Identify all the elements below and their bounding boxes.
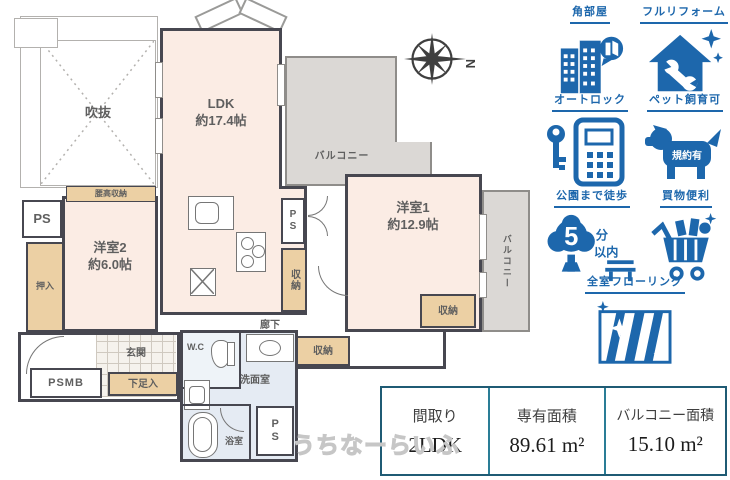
bath-room: 浴室 (183, 404, 251, 460)
park-icon: 5 分 以内 (544, 213, 640, 283)
balcony-right: バルコニー (482, 190, 530, 332)
window (479, 214, 487, 260)
refrigerator-space (190, 268, 216, 296)
auto-lock-icon (544, 117, 636, 189)
bathtub (188, 412, 218, 458)
flooring-icon (592, 299, 678, 371)
closet-oshiire: 押入 (26, 242, 64, 332)
watermark: うちなーらいふ (292, 426, 460, 460)
bath-door-arc (220, 408, 244, 432)
feature-label-park-walk: 公園まで徒歩 (554, 190, 630, 208)
kitchen-counter (188, 196, 234, 230)
void-inner: 吹抜 (40, 40, 156, 186)
feature-label-auto-lock: オートロック (552, 94, 628, 112)
feature-auto-lock: オートロック (542, 94, 638, 189)
bathtub-inner (193, 417, 212, 452)
wc-label: W.C (187, 342, 204, 354)
ps-bath: PS (256, 406, 294, 456)
genkan-label: 玄関 (96, 347, 176, 360)
park-within-label: 以内 (594, 245, 619, 260)
kitchen-stove (236, 232, 266, 272)
closet-koshidaka: 腰高収納 (66, 186, 156, 202)
feature-label-full-reform: フルリフォーム (640, 6, 728, 24)
window (155, 62, 163, 98)
area-header: 専有面積 (517, 405, 577, 426)
window (155, 118, 163, 154)
park-minute-unit: 分 (596, 228, 609, 243)
feature-label-flooring: 全室フローリング (585, 276, 685, 294)
room1-label: 洋室1 約12.9帖 (358, 200, 468, 234)
feature-full-reform: フルリフォーム (638, 6, 730, 101)
feature-label-corner-room: 角部屋 (570, 6, 610, 24)
closet-room1: 収納 (420, 294, 476, 328)
double-door-lower (308, 216, 328, 236)
bath-label: 浴室 (219, 436, 249, 448)
psmb-box: PSMB (30, 368, 102, 398)
closet-getabako: 下足入 (108, 372, 178, 396)
feature-park-walk: 公園まで徒歩 5 分 以内 (542, 190, 642, 283)
closet-kitchen: 収納 (281, 248, 307, 312)
balcony-top-label: バルコニー (292, 150, 392, 163)
feature-flooring: 全室フローリング (540, 276, 730, 371)
area-value: 89.61 m² (509, 433, 584, 458)
full-reform-icon (644, 29, 724, 101)
balcony-header: バルコニー面積 (616, 405, 714, 425)
shopping-cart-icon (648, 213, 724, 283)
senmen-label: 洗面室 (225, 374, 285, 387)
south-wall-b (443, 332, 446, 369)
feature-pet-ok: ペット飼育可 規約有 (640, 94, 730, 189)
park-minutes-value: 5 (564, 223, 578, 251)
washer-drum (189, 386, 205, 404)
vanity-sink (246, 334, 294, 362)
compass-icon: N (396, 26, 482, 92)
closet-hall: 収納 (296, 336, 350, 366)
room2-label: 洋室2 約6.0帖 (64, 240, 156, 274)
window (277, 64, 285, 106)
feature-label-pet-ok: ペット飼育可 (647, 94, 723, 112)
summary-col-area: 専有面積 89.61 m² (488, 388, 603, 474)
corner-room-icon (548, 29, 632, 101)
double-door-upper (308, 196, 328, 216)
void-corner-box (14, 18, 58, 48)
feature-corner-room: 角部屋 (544, 6, 636, 101)
ps-left: PS (22, 200, 62, 238)
toilet-tank (227, 342, 235, 366)
pet-badge-label: 規約有 (672, 149, 702, 162)
window (479, 272, 487, 298)
feature-label-shopping: 買物便利 (660, 190, 712, 208)
feature-shopping: 買物便利 (646, 190, 726, 283)
balcony-value: 15.10 m² (628, 432, 703, 457)
summary-col-balcony: バルコニー面積 15.10 m² (604, 388, 725, 474)
ps-kitchen: PS (281, 198, 305, 244)
pet-icon: 規約有 (641, 117, 729, 189)
refrigerator-cross (191, 269, 214, 294)
kitchen-sink (195, 202, 219, 224)
south-wall-a (288, 366, 446, 369)
madori-header: 間取り (413, 405, 458, 426)
ldk-label: LDK 約17.4帖 (165, 96, 277, 130)
void-label: 吹抜 (41, 41, 155, 185)
vanity-bowl (259, 340, 281, 356)
room1-door-arc (318, 266, 348, 296)
balcony-top (285, 56, 397, 144)
floor-plan-page: 吹抜 LDK 約17.4帖 バルコニー 洋室1 約12.9帖 収納 バルコニー (0, 0, 730, 480)
compass-north-label: N (463, 59, 478, 68)
